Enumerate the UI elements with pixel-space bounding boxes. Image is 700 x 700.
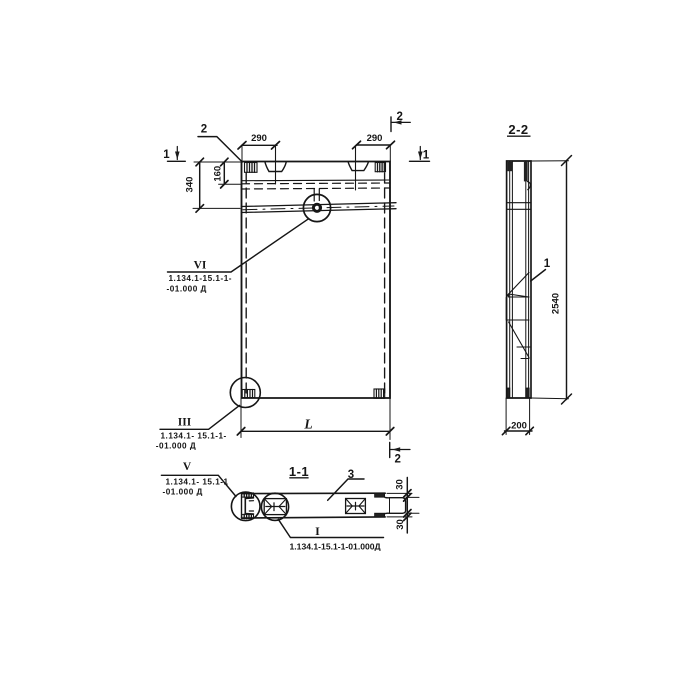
svg-text:1: 1: [544, 258, 551, 270]
svg-text:30: 30: [395, 519, 406, 530]
svg-text:-01.000 Д: -01.000 Д: [156, 442, 196, 451]
svg-text:290: 290: [251, 133, 267, 144]
svg-text:III: III: [178, 417, 192, 429]
svg-text:1.134.1- 15.1-1-: 1.134.1- 15.1-1-: [161, 432, 227, 441]
svg-text:290: 290: [367, 133, 383, 144]
svg-text:1-1: 1-1: [289, 464, 309, 479]
svg-text:3: 3: [348, 469, 354, 481]
svg-text:1.134.1- 15.1-1: 1.134.1- 15.1-1: [166, 477, 229, 486]
svg-text:1: 1: [423, 150, 430, 162]
svg-text:V: V: [183, 461, 192, 473]
svg-text:160: 160: [212, 166, 223, 182]
svg-text:30: 30: [395, 479, 406, 490]
svg-text:L: L: [303, 417, 312, 432]
svg-text:1.134.1-15.1-1-01.000Д: 1.134.1-15.1-1-01.000Д: [290, 541, 381, 551]
svg-text:2: 2: [201, 124, 207, 136]
svg-text:-01.000 Д: -01.000 Д: [167, 284, 207, 293]
svg-text:2: 2: [394, 454, 400, 466]
svg-text:-01.000 Д: -01.000 Д: [163, 488, 203, 497]
svg-text:2-2: 2-2: [508, 122, 528, 137]
svg-text:200: 200: [511, 420, 527, 431]
svg-text:VI: VI: [194, 260, 207, 272]
svg-text:2: 2: [396, 111, 402, 123]
svg-text:1.134.1-15.1-1-: 1.134.1-15.1-1-: [169, 274, 233, 283]
svg-text:1: 1: [163, 149, 170, 161]
svg-text:340: 340: [185, 177, 196, 193]
svg-text:2540: 2540: [551, 293, 562, 314]
svg-text:I: I: [315, 524, 320, 538]
